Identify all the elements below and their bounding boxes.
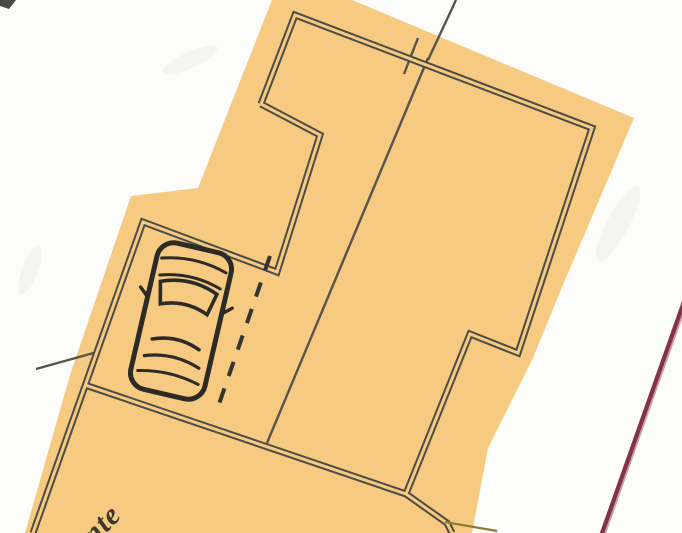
boundary-red-line bbox=[601, 296, 682, 533]
scan-corner-mark bbox=[0, 0, 16, 9]
site-plan: nte bbox=[0, 0, 682, 533]
parcel-area bbox=[25, 0, 634, 533]
site-plan-svg: nte bbox=[0, 0, 682, 533]
